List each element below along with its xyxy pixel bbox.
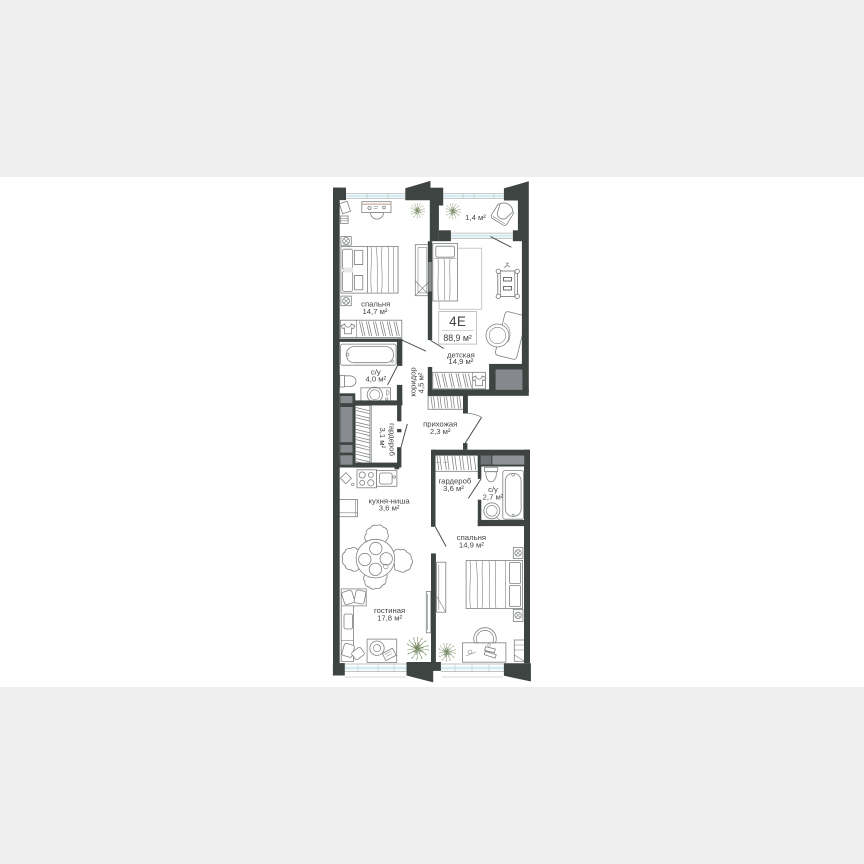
svg-text:4,5 м²: 4,5 м² [417,372,426,393]
svg-text:2,7 м²: 2,7 м² [483,492,504,501]
svg-text:1,4 м²: 1,4 м² [465,213,486,222]
svg-text:4E: 4E [449,314,466,329]
svg-text:88,9 м²: 88,9 м² [443,333,472,343]
svg-text:2,3 м²: 2,3 м² [430,427,451,436]
svg-text:гардероб: гардероб [387,423,396,456]
svg-text:14,9 м²: 14,9 м² [448,357,473,366]
svg-text:14,7 м²: 14,7 м² [363,307,388,316]
svg-text:3,6 м²: 3,6 м² [379,504,400,513]
svg-text:3,6 м²: 3,6 м² [443,484,464,493]
svg-text:17,8 м²: 17,8 м² [377,613,402,622]
svg-text:4,0 м²: 4,0 м² [365,375,386,384]
svg-text:3,1 м²: 3,1 м² [378,427,387,448]
svg-text:14,9 м²: 14,9 м² [459,541,484,550]
